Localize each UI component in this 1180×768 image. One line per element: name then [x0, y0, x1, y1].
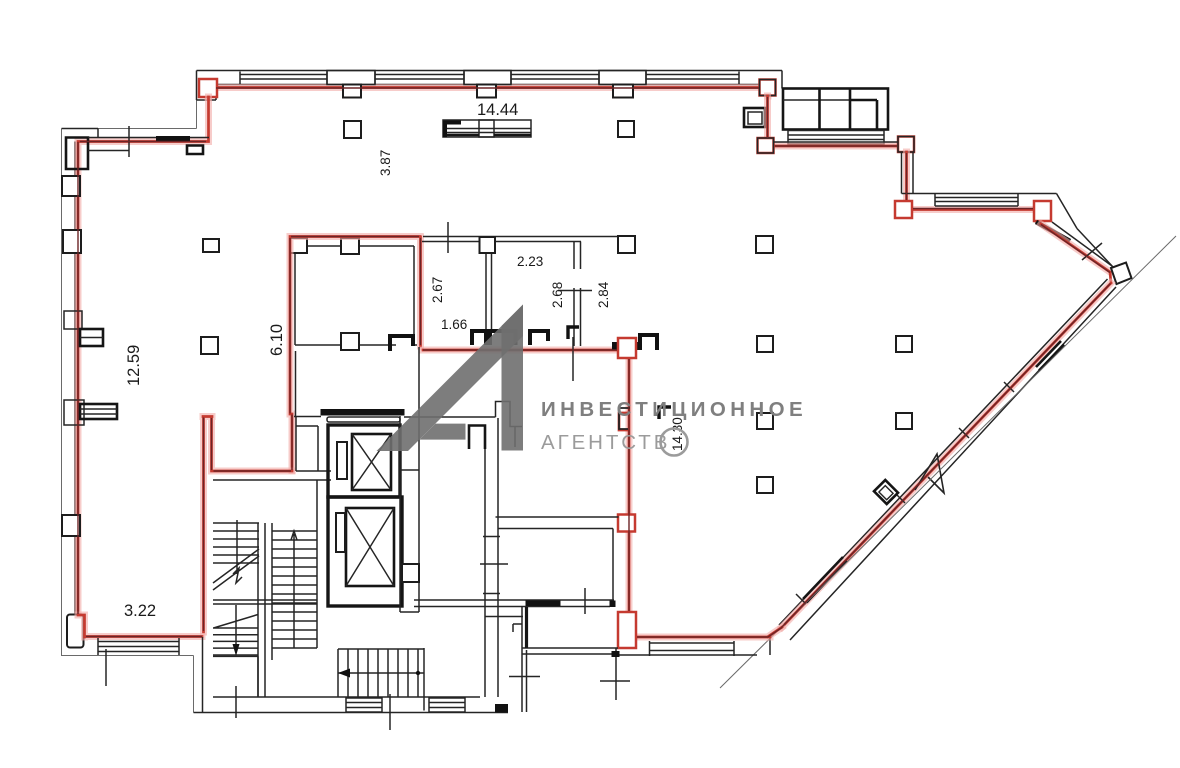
- svg-text:2.67: 2.67: [430, 277, 445, 303]
- svg-text:АГЕНТСТВ: АГЕНТСТВ: [541, 431, 670, 454]
- svg-text:2.68: 2.68: [550, 282, 565, 308]
- svg-text:2.84: 2.84: [596, 281, 611, 308]
- svg-text:14.44: 14.44: [477, 101, 518, 119]
- svg-text:1.66: 1.66: [441, 317, 467, 332]
- svg-text:14.30: 14.30: [670, 417, 685, 451]
- svg-text:6.10: 6.10: [268, 324, 286, 356]
- svg-text:ИНВЕСТИЦИОННОЕ: ИНВЕСТИЦИОННОЕ: [541, 398, 807, 421]
- svg-text:3.22: 3.22: [124, 602, 156, 620]
- svg-text:3.87: 3.87: [378, 150, 393, 176]
- svg-text:12.59: 12.59: [125, 345, 143, 386]
- svg-text:2.23: 2.23: [517, 254, 543, 269]
